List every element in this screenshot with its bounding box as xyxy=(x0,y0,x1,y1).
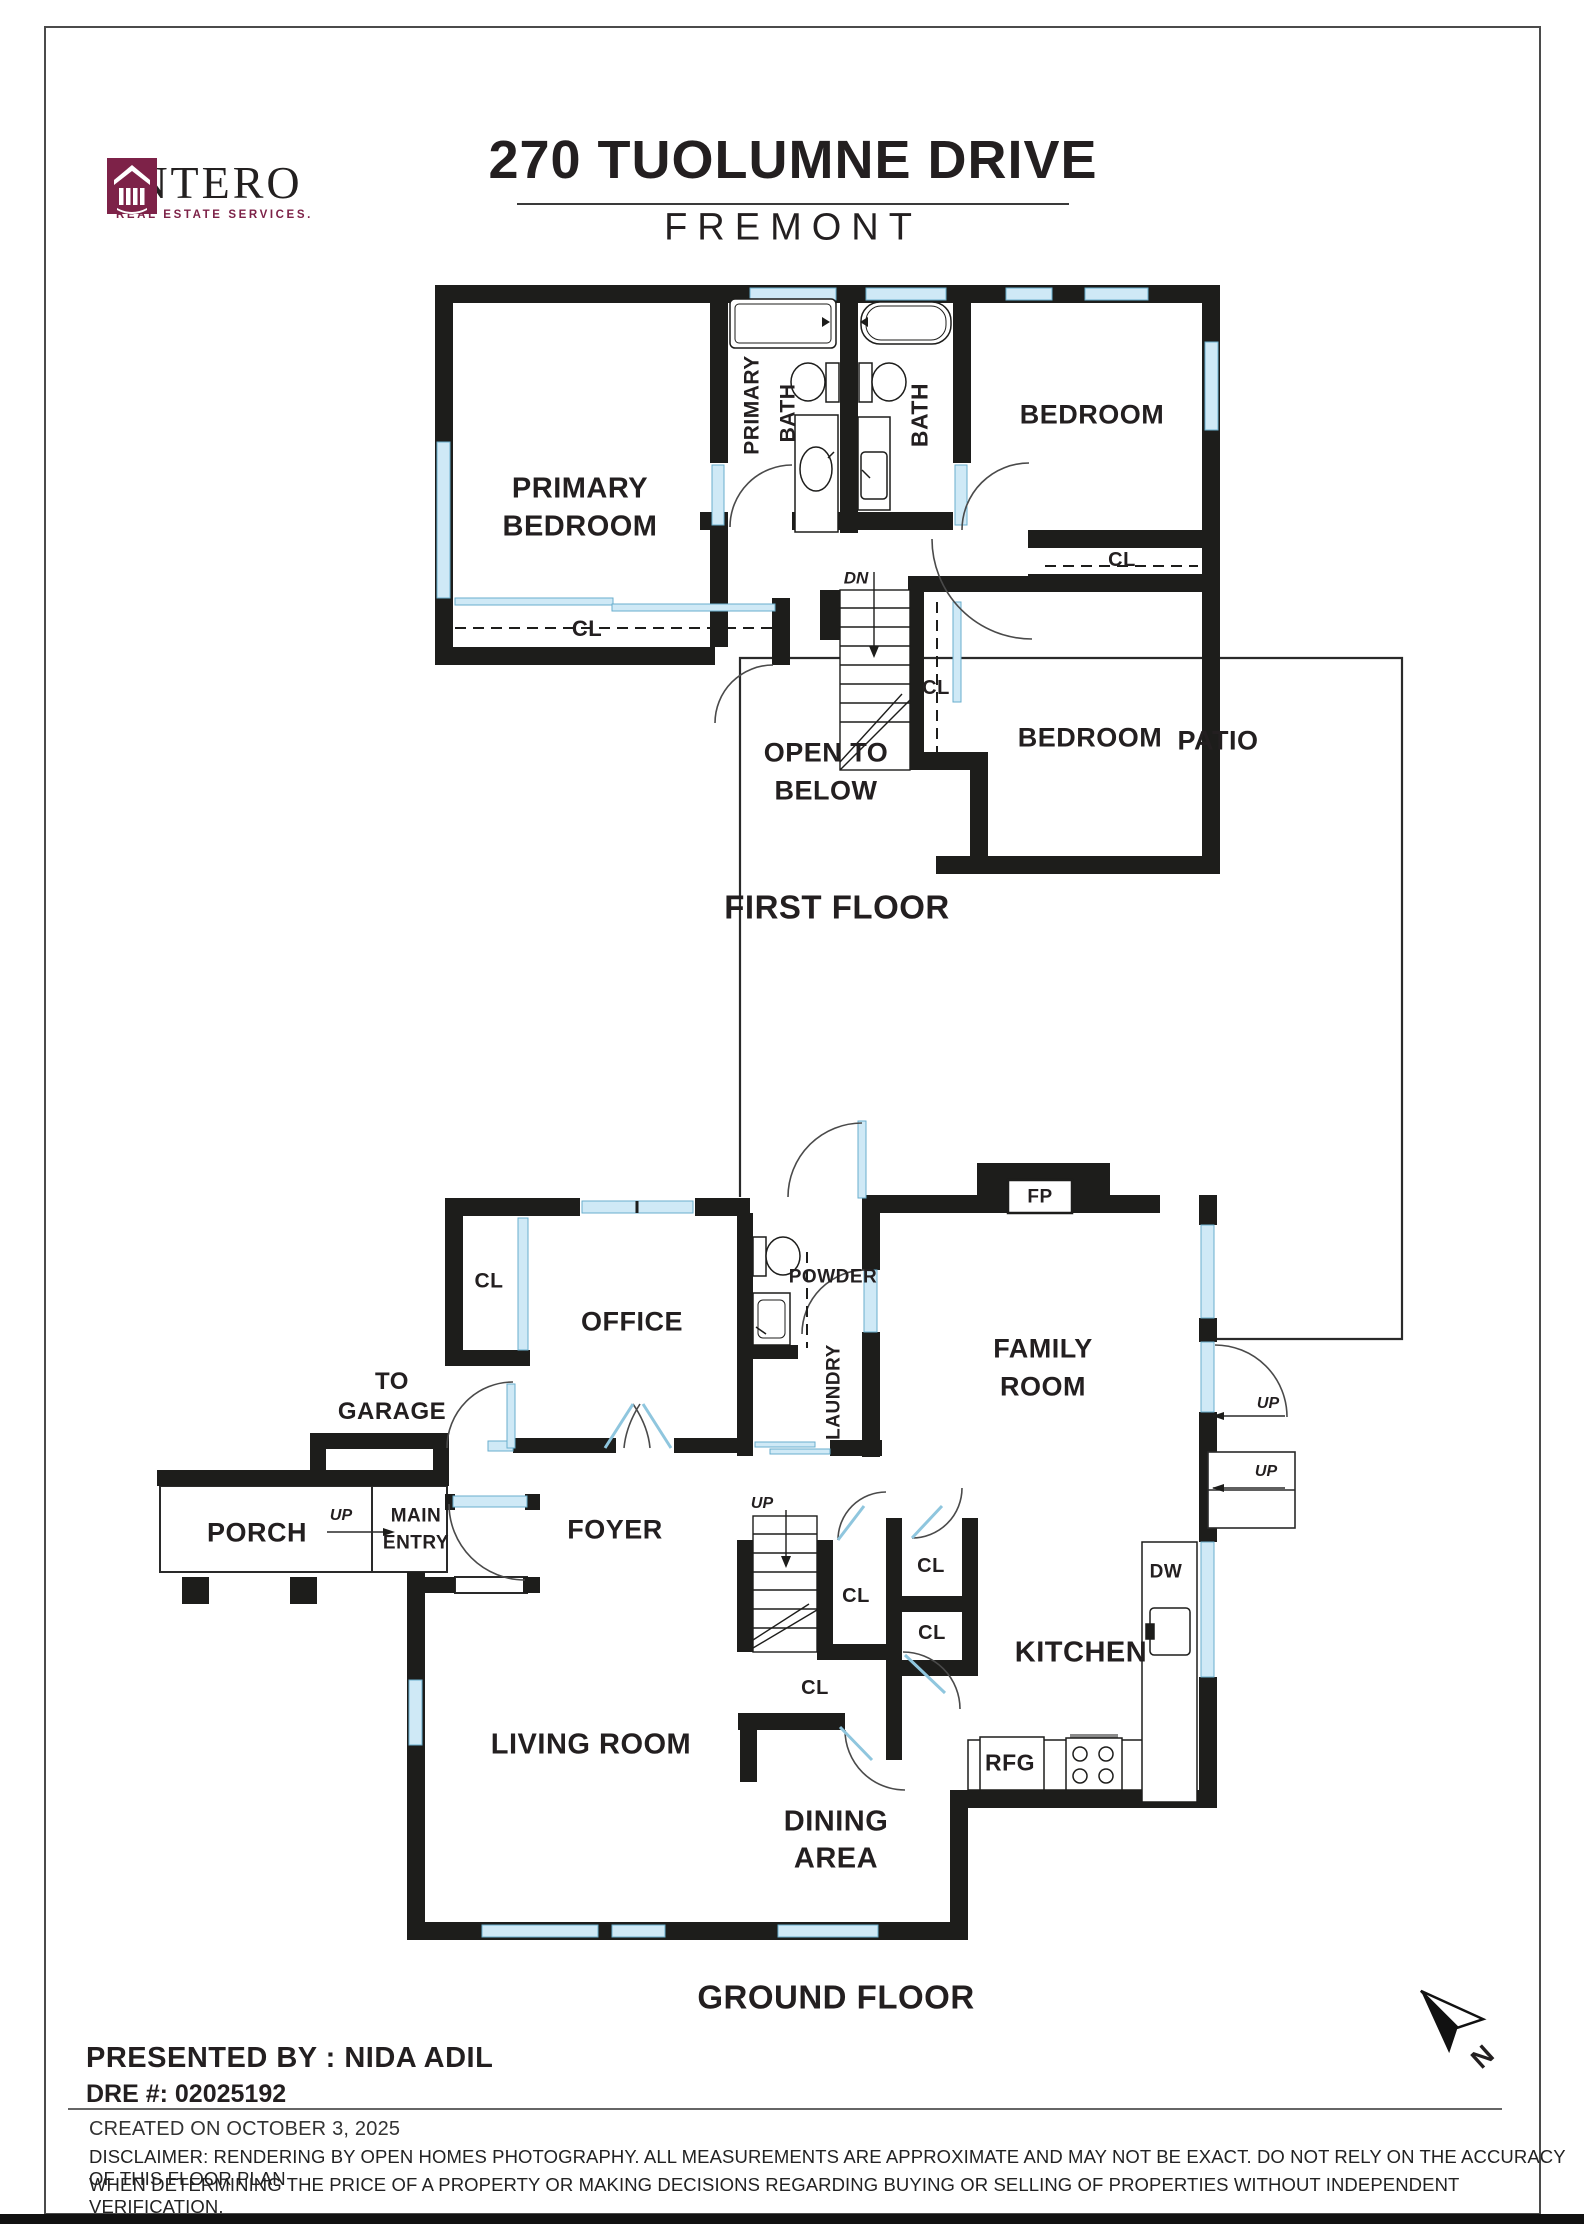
gf-closet-label: CL xyxy=(918,1623,946,1643)
bottom-bar xyxy=(0,2214,1584,2224)
gf-fireplace-label: FP xyxy=(1027,1188,1052,1207)
gf-dishwasher-label: DW xyxy=(1150,1563,1183,1582)
ff-primary-bedroom-label: BEDROOM xyxy=(503,513,658,542)
gf-closet-label: CL xyxy=(842,1586,870,1606)
ff-open-to-below-label: OPEN TO xyxy=(764,740,889,767)
gf-kitchen-label: KITCHEN xyxy=(1015,1639,1147,1668)
gf-closet-label: CL xyxy=(917,1556,945,1576)
gf-patio-steps-up-label: UP xyxy=(1257,1396,1279,1412)
gf-stairs-up-label: UP xyxy=(751,1496,773,1512)
gf-family-room-label: FAMILY xyxy=(993,1336,1093,1363)
ff-bedroom-bottom-label: BEDROOM xyxy=(1018,725,1163,752)
gf-porch-label: PORCH xyxy=(207,1520,307,1547)
north-arrow-icon xyxy=(1404,1974,1483,2053)
dre-number: DRE #: 02025192 xyxy=(86,2080,286,2109)
gf-laundry-label: LAUNDRY xyxy=(825,1344,844,1440)
gf-family-room-label: ROOM xyxy=(1000,1374,1086,1401)
gf-refrigerator-label: RFG xyxy=(985,1752,1035,1775)
gf-foyer-label: FOYER xyxy=(567,1517,663,1544)
created-date: CREATED ON OCTOBER 3, 2025 xyxy=(89,2118,400,2141)
gf-to-garage-label: GARAGE xyxy=(338,1400,446,1424)
gf-patio-steps-up-label: UP xyxy=(1255,1464,1277,1480)
ff-primary-bedroom-label: PRIMARY xyxy=(512,475,648,504)
gf-dining-area-label: AREA xyxy=(794,1845,878,1874)
ff-closet-label: CL xyxy=(572,618,602,640)
ff-open-to-below-label: BELOW xyxy=(775,778,878,805)
gf-walls xyxy=(157,1163,1217,1940)
gf-to-garage-label: TO xyxy=(375,1370,409,1394)
floor-plan-drawing xyxy=(0,0,1584,2240)
ff-bedroom-top-label: BEDROOM xyxy=(1020,402,1165,429)
ff-closet-label: CL xyxy=(1108,550,1136,570)
gf-stairs xyxy=(753,1510,817,1652)
ground-floor-caption: GROUND FLOOR xyxy=(697,1981,974,2014)
gf-living-room-label: LIVING ROOM xyxy=(491,1731,691,1760)
gf-office-label: OFFICE xyxy=(581,1309,683,1336)
gf-patio-label: PATIO xyxy=(1178,728,1259,755)
ff-primary-bath-label: BATH xyxy=(778,384,799,443)
gf-porch-up-label: UP xyxy=(330,1508,352,1524)
ff-stairs-down-label: DN xyxy=(844,570,869,587)
disclaimer-line: WHEN DETERMINING THE PRICE OF A PROPERTY… xyxy=(89,2174,1584,2218)
presented-by: PRESENTED BY : NIDA ADIL xyxy=(86,2042,493,2075)
gf-powder-label: POWDER xyxy=(789,1268,878,1287)
gf-closet-label: CL xyxy=(801,1678,829,1698)
ff-bath-label: BATH xyxy=(909,383,932,447)
gf-dining-area-label: DINING xyxy=(784,1808,889,1837)
gf-main-entry-label: ENTRY xyxy=(383,1534,449,1553)
gf-main-entry-label: MAIN xyxy=(391,1507,442,1526)
gf-closet-label: CL xyxy=(475,1271,504,1292)
ff-closet-label: CL xyxy=(922,678,950,698)
footer-divider xyxy=(68,2108,1502,2110)
first-floor-caption: FIRST FLOOR xyxy=(724,891,949,924)
ff-primary-bath-label: PRIMARY xyxy=(742,355,763,455)
floor-plan-page: INTERO REAL ESTATE SERVICES. 270 TUOLUMN… xyxy=(0,0,1584,2240)
